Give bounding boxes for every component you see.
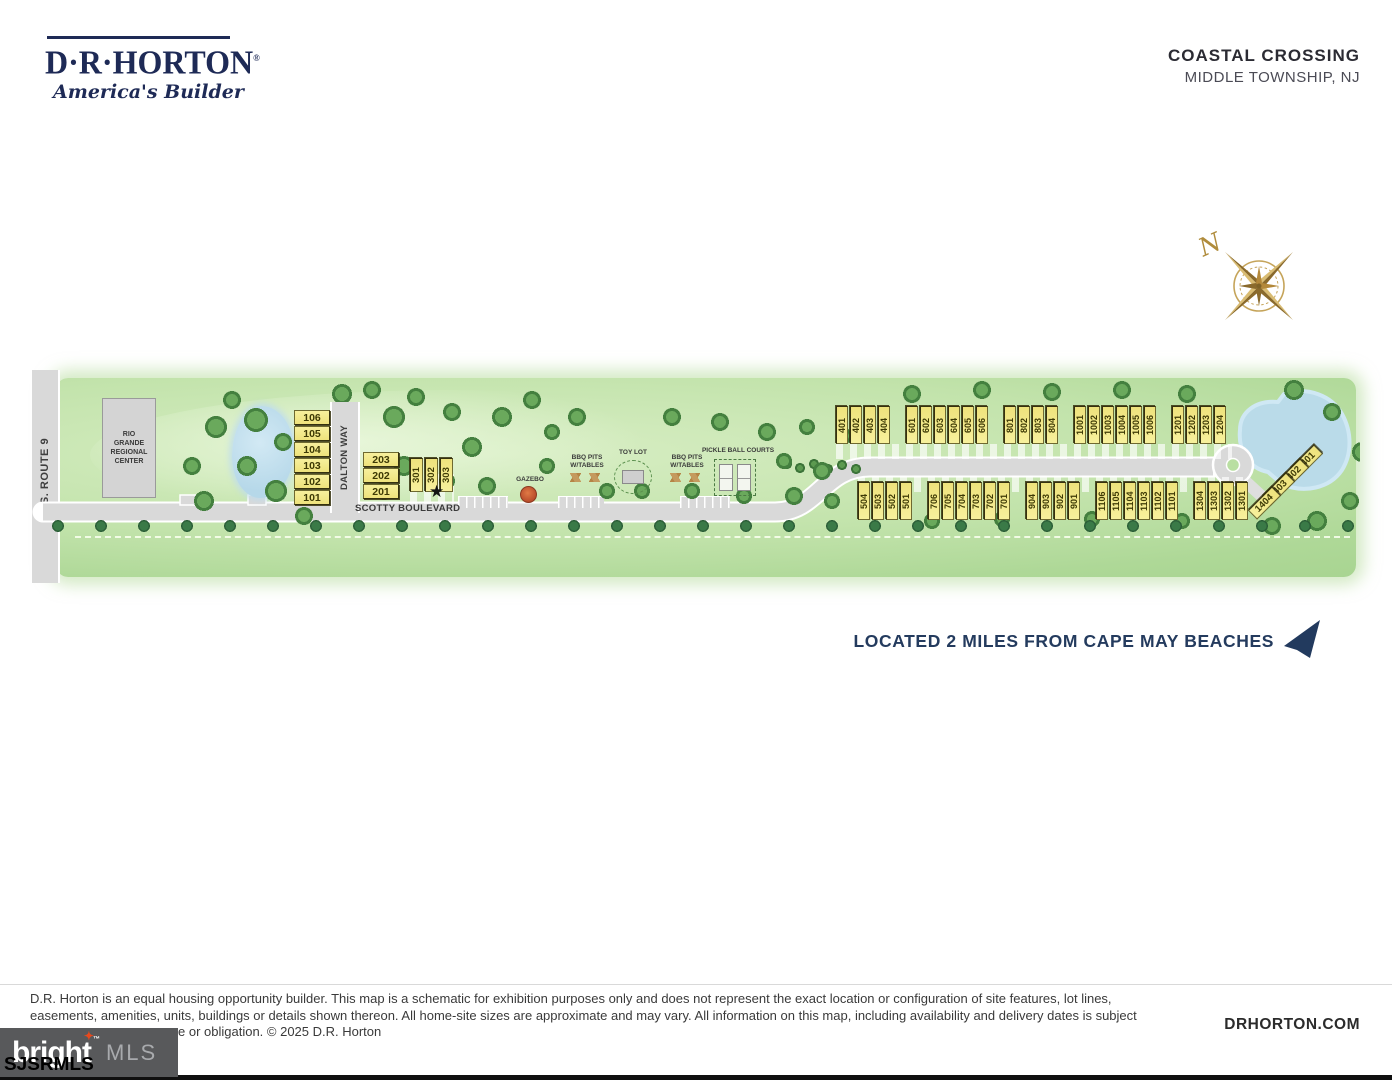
road-dalton-way-label: DALTON WAY	[340, 425, 351, 490]
pickleball-court-icon	[737, 464, 751, 491]
bbq-pits-label: BBQ PITS W/TABLES	[564, 454, 610, 470]
lot-row-south: 5045035025017067057047037027019049039029…	[858, 482, 1264, 520]
mls-text: MLS	[106, 1040, 157, 1066]
lot-103: 103	[294, 458, 330, 473]
lot-1105: 1105	[1110, 482, 1122, 520]
lot-group: 110611051104110311021101	[1096, 482, 1178, 520]
lot-606: 606	[976, 406, 988, 444]
lot-104: 104	[294, 442, 330, 457]
lot-401: 401	[836, 406, 848, 444]
sjsrmls-watermark: SJSRMLS	[4, 1055, 94, 1076]
lot-1002: 1002	[1088, 406, 1100, 444]
lot-1006: 1006	[1144, 406, 1156, 444]
lot-group: 601602603604605606	[906, 406, 988, 444]
lot-802: 802	[1018, 406, 1030, 444]
builder-logo: D·R·HORTON® America's Builder	[45, 36, 245, 103]
lot-1004: 1004	[1116, 406, 1128, 444]
picnic-tables-icon	[569, 473, 601, 482]
lot-502: 502	[886, 482, 898, 520]
lot-group: 706705704703702701	[928, 482, 1010, 520]
lot-1001: 1001	[1074, 406, 1086, 444]
lot-1302: 1302	[1222, 482, 1234, 520]
beach-arrow-icon	[1284, 620, 1322, 662]
lot-404: 404	[878, 406, 890, 444]
lot-1203: 1203	[1200, 406, 1212, 444]
lot-group: 801802803804	[1004, 406, 1058, 444]
lot-301: 301	[410, 458, 423, 492]
lot-1102: 1102	[1152, 482, 1164, 520]
lot-703: 703	[970, 482, 982, 520]
toy-lot-label: TOY LOT	[615, 449, 651, 457]
lot-803: 803	[1032, 406, 1044, 444]
road-dalton-way: DALTON WAY	[330, 402, 360, 513]
lot-1103: 1103	[1138, 482, 1150, 520]
boundary-dashed-line	[75, 536, 1350, 538]
lot-1304: 1304	[1194, 482, 1206, 520]
site-map: U.S. ROUTE 9 RIO GRANDE REGIONAL CENTER …	[30, 370, 1360, 583]
picnic-tables-icon	[669, 473, 701, 482]
builder-tagline: America's Builder	[53, 81, 245, 103]
lot-1003: 1003	[1102, 406, 1114, 444]
lot-group: 504503502501	[858, 482, 912, 520]
disclaimer-line: D.R. Horton is an equal housing opportun…	[30, 991, 1210, 1008]
lot-902: 902	[1054, 482, 1066, 520]
lot-1204: 1204	[1214, 406, 1226, 444]
bottom-bar	[0, 1075, 1392, 1080]
gazebo-label: GAZEBO	[508, 476, 552, 484]
sparkle-icon: ✦	[84, 1029, 93, 1043]
bbq-pits-label: BBQ PITS W/TABLES	[664, 454, 710, 470]
compass-rose-icon: N	[1193, 226, 1313, 330]
community-header: COASTAL CROSSING MIDDLE TOWNSHIP, NJ	[1168, 46, 1360, 86]
picnic-table-icon	[588, 473, 601, 482]
lot-cluster-1400s: 1401140214031404	[1256, 446, 1336, 532]
drhorton-website-link[interactable]: DRHORTON.COM	[1224, 1016, 1360, 1034]
lot-1301: 1301	[1236, 482, 1248, 520]
lot-701: 701	[998, 482, 1010, 520]
lot-602: 602	[920, 406, 932, 444]
lot-1201: 1201	[1172, 406, 1184, 444]
lot-501: 501	[900, 482, 912, 520]
star-marker-icon: ★	[429, 483, 444, 500]
lot-102: 102	[294, 474, 330, 489]
lot-801: 801	[1004, 406, 1016, 444]
lot-column-200s: 203202201	[363, 452, 399, 499]
street-tree-row	[50, 518, 1355, 534]
gazebo-icon	[520, 486, 537, 503]
toy-lot-area	[614, 460, 652, 494]
community-location: MIDDLE TOWNSHIP, NJ	[1168, 69, 1360, 86]
lot-1104: 1104	[1124, 482, 1136, 520]
lot-group: 401402403404	[836, 406, 890, 444]
picnic-table-icon	[688, 473, 701, 482]
picnic-table-icon	[669, 473, 682, 482]
disclaimer-line: easements, amenities, units, buildings o…	[30, 1008, 1210, 1025]
lot-group: 1304130313021301	[1194, 482, 1248, 520]
lot-201: 201	[363, 484, 399, 499]
lot-901: 901	[1068, 482, 1080, 520]
lot-105: 105	[294, 426, 330, 441]
pickleball-court-icon	[719, 464, 733, 491]
builder-name-text: D·R·HORTON	[45, 43, 253, 81]
picnic-table-icon	[569, 473, 582, 482]
community-title: COASTAL CROSSING	[1168, 46, 1360, 66]
lot-603: 603	[934, 406, 946, 444]
lot-601: 601	[906, 406, 918, 444]
lot-705: 705	[942, 482, 954, 520]
lot-605: 605	[962, 406, 974, 444]
pickleball-courts-area	[714, 459, 756, 496]
playground-icon	[622, 470, 644, 484]
lot-904: 904	[1026, 482, 1038, 520]
beach-distance-text: LOCATED 2 MILES FROM CAPE MAY BEACHES	[853, 631, 1274, 652]
registered-mark: ®	[253, 53, 260, 64]
lot-402: 402	[850, 406, 862, 444]
disclaimer: D.R. Horton is an equal housing opportun…	[30, 991, 1210, 1041]
lot-903: 903	[1040, 482, 1052, 520]
disclaimer-line: e or obligation. © 2025 D.R. Horton	[30, 1024, 1210, 1041]
lot-1101: 1101	[1166, 482, 1178, 520]
lot-106: 106	[294, 410, 330, 425]
lot-504: 504	[858, 482, 870, 520]
lot-706: 706	[928, 482, 940, 520]
lot-804: 804	[1046, 406, 1058, 444]
lot-503: 503	[872, 482, 884, 520]
road-scotty-boulevard-label: SCOTTY BOULEVARD	[355, 503, 460, 514]
lot-1202: 1202	[1186, 406, 1198, 444]
lot-group: 904903902901	[1026, 482, 1080, 520]
lot-702: 702	[984, 482, 996, 520]
footer-divider	[0, 984, 1392, 985]
builder-name: D·R·HORTON®	[45, 38, 245, 82]
lot-704: 704	[956, 482, 968, 520]
lot-1106: 1106	[1096, 482, 1108, 520]
lot-101: 101	[294, 490, 330, 505]
pickleball-courts-label: PICKLE BALL COURTS	[696, 447, 780, 455]
lot-row-north: 4014024034046016026036046056068018028038…	[836, 406, 1242, 444]
beach-distance-note: LOCATED 2 MILES FROM CAPE MAY BEACHES	[853, 620, 1322, 662]
lot-1005: 1005	[1130, 406, 1142, 444]
lot-403: 403	[864, 406, 876, 444]
lot-1303: 1303	[1208, 482, 1220, 520]
lot-group: 1201120212031204	[1172, 406, 1226, 444]
lot-group: 100110021003100410051006	[1074, 406, 1156, 444]
lot-203: 203	[363, 452, 399, 467]
lot-202: 202	[363, 468, 399, 483]
lot-column-100s: 106105104103102101	[294, 410, 330, 505]
trademark-symbol: ™	[93, 1036, 99, 1043]
lot-604: 604	[948, 406, 960, 444]
